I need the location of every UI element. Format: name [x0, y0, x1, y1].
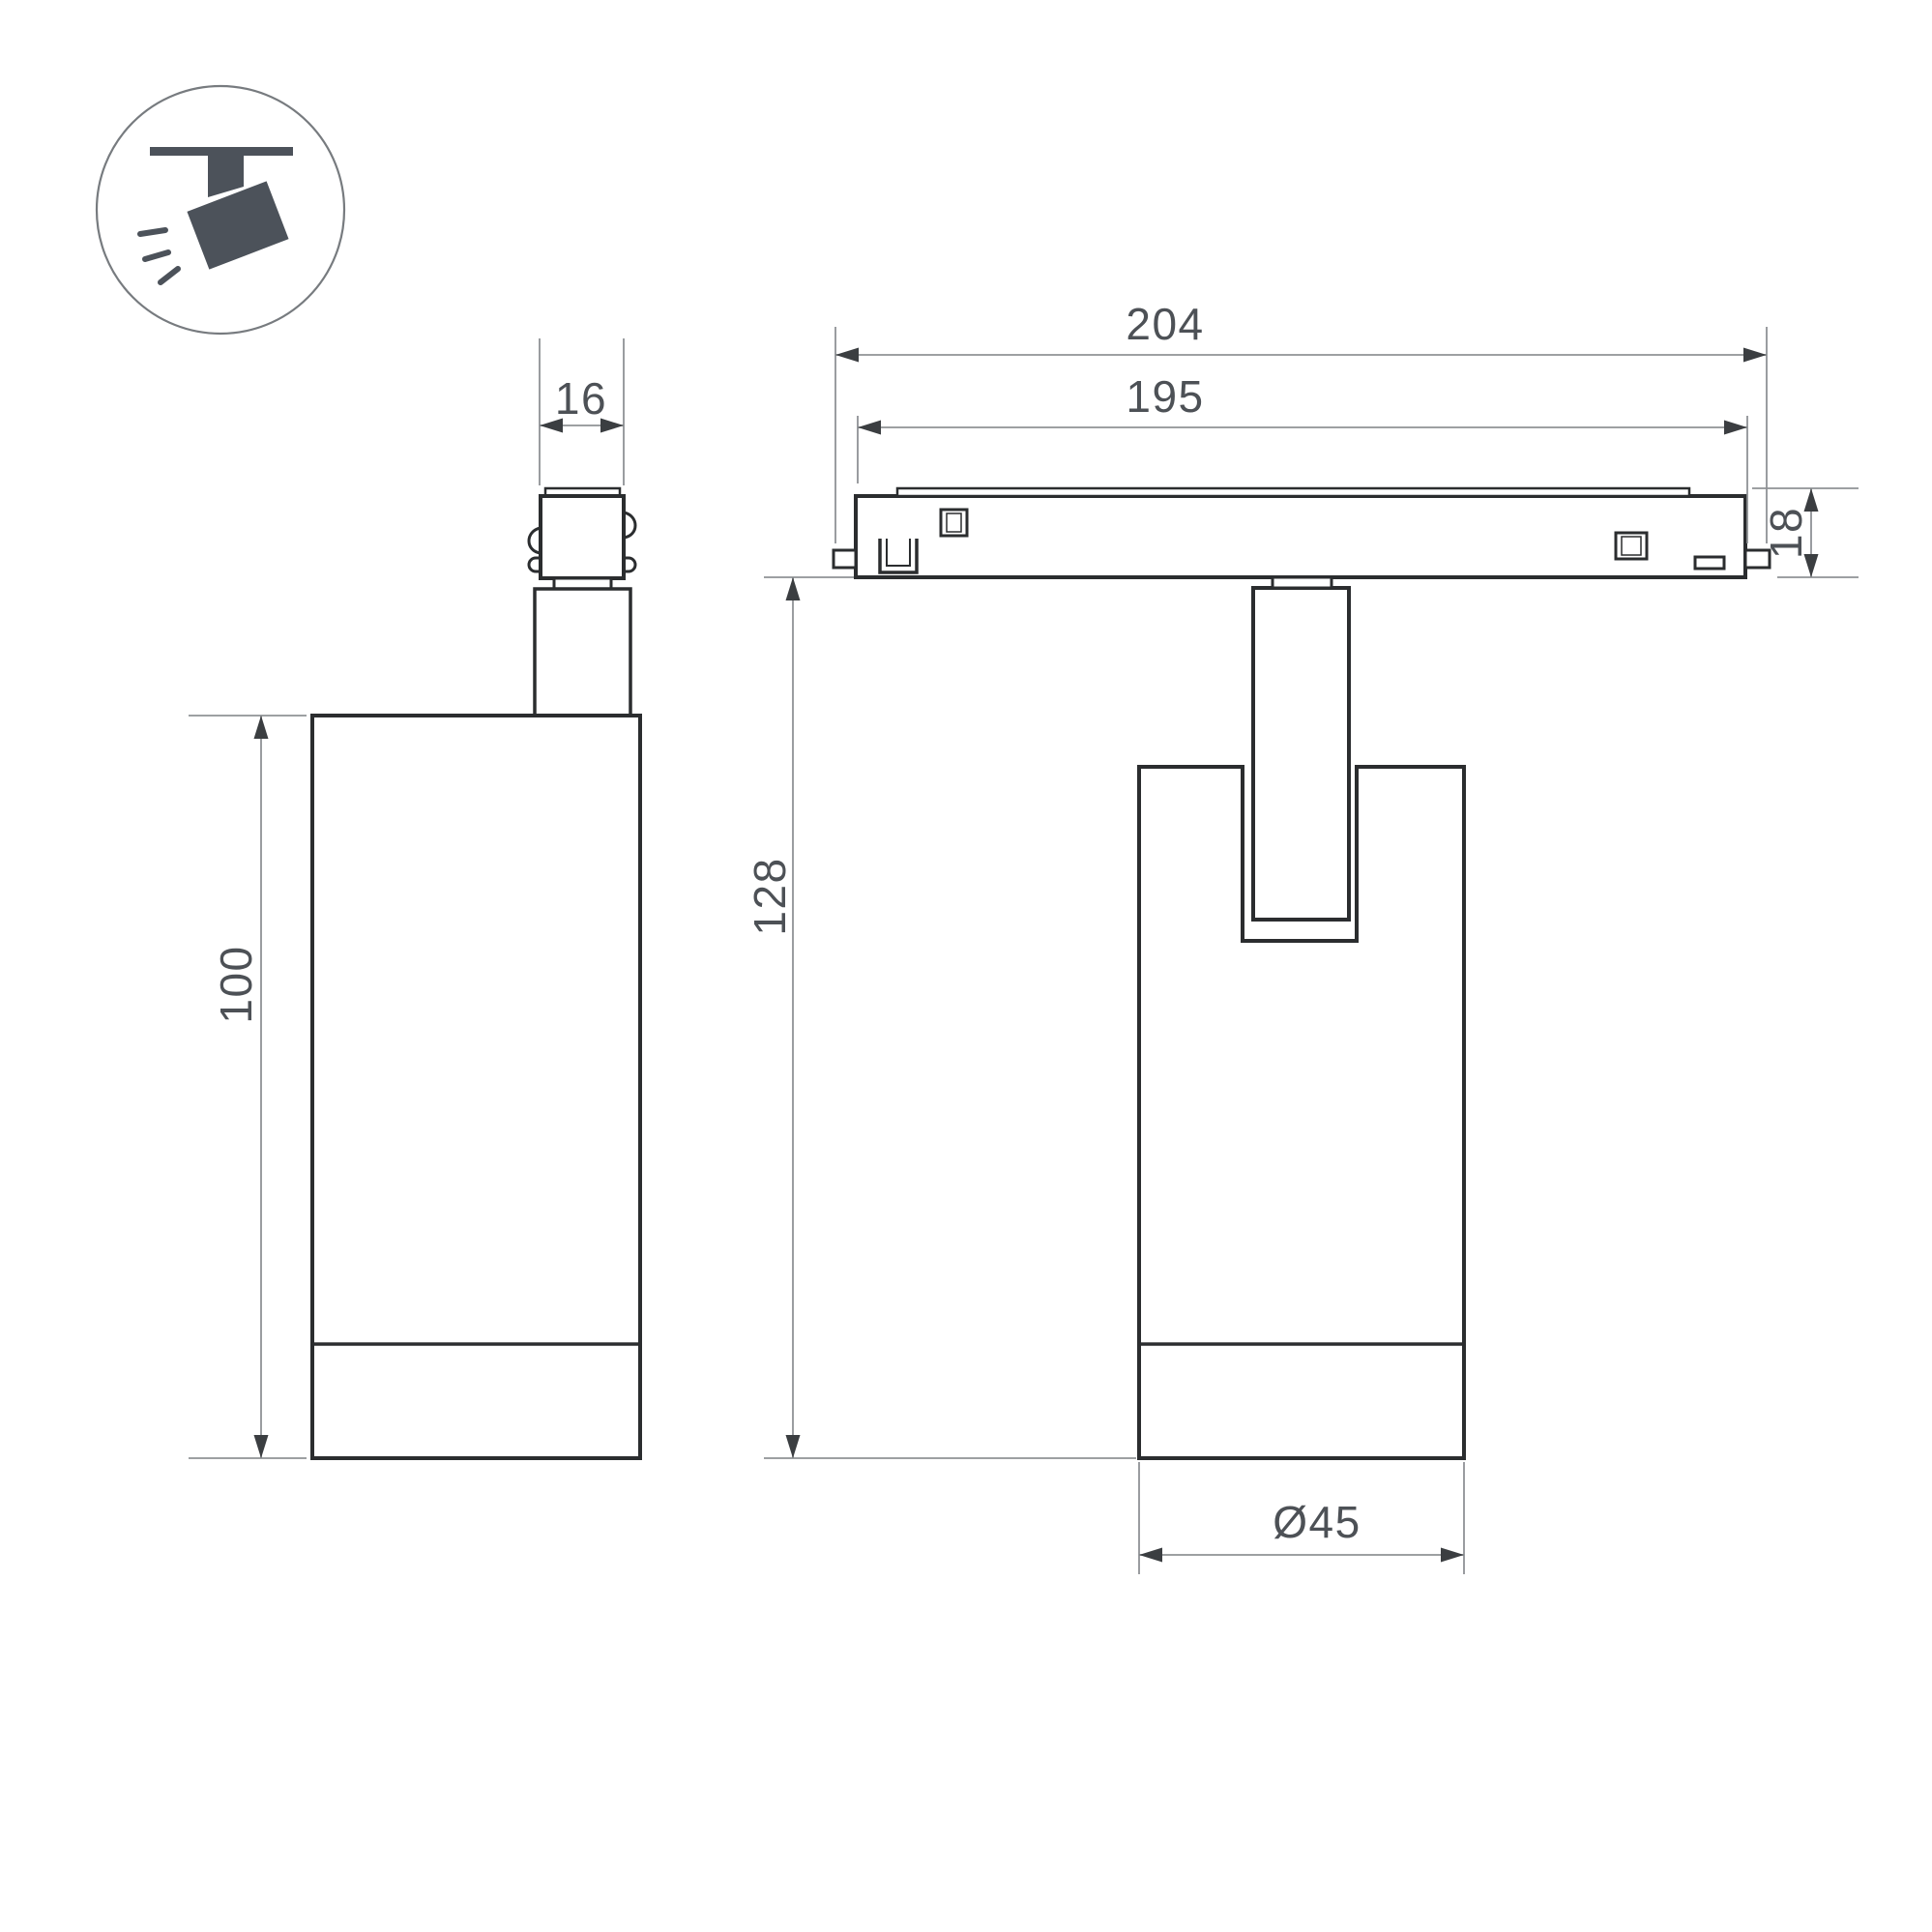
front-track-left-tab — [834, 550, 856, 568]
front-view — [834, 488, 1770, 1458]
arrowhead-right — [1441, 1548, 1464, 1563]
dimension-label: 128 — [745, 857, 795, 935]
dimension-label: Ø45 — [1273, 1497, 1361, 1547]
dimension-label: 100 — [211, 945, 261, 1023]
arrowhead-left — [1139, 1548, 1162, 1563]
icon-light-ray — [145, 252, 168, 259]
dimension-45: Ø45 — [1139, 1462, 1464, 1574]
arrowhead-down — [786, 1435, 801, 1458]
side-view — [312, 488, 640, 1458]
dimension-label: 204 — [1126, 299, 1204, 349]
arrowhead-down — [254, 1435, 269, 1458]
dimension-label: 16 — [555, 373, 607, 424]
front-stem — [1253, 588, 1349, 920]
dimension-label: 195 — [1126, 371, 1204, 422]
dimension-128: 128 — [745, 577, 1136, 1458]
arrowhead-up — [254, 716, 269, 739]
front-track-top-plate — [897, 488, 1689, 496]
icon-light-ray — [140, 230, 165, 234]
arrowhead-right — [1743, 348, 1767, 363]
side-adapter-body — [541, 496, 624, 578]
icon-light-ray — [161, 269, 178, 282]
icon-stem — [208, 154, 244, 197]
track-light-icon — [97, 86, 344, 334]
side-lamp-body — [312, 716, 640, 1458]
icon-spotlight-head — [187, 181, 288, 269]
dimension-16: 16 — [540, 338, 624, 485]
arrowhead-right — [1724, 421, 1747, 435]
side-stem — [535, 589, 630, 716]
dimension-label: 18 — [1761, 507, 1811, 559]
dimension-100: 100 — [189, 716, 307, 1458]
front-track-body — [856, 496, 1745, 577]
front-stem-collar — [1273, 577, 1332, 588]
arrowhead-left — [858, 421, 881, 435]
arrowhead-up — [786, 577, 801, 600]
front-track-slot — [1695, 557, 1724, 569]
technical-drawing: 16 100 204 195 18 — [0, 0, 1932, 1932]
arrowhead-left — [835, 348, 859, 363]
